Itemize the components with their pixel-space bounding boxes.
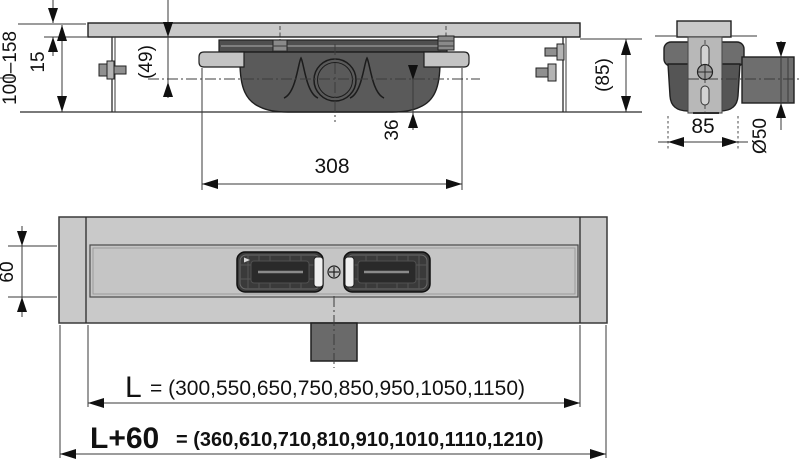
lift-slot-left-unit [314,257,323,287]
technical-drawing: 100–158 15 (49) 36 (8 [0,0,800,460]
grate-insert-right [344,252,430,292]
grate-insert-left [237,252,323,292]
outlet-pipe [742,57,794,103]
top-plate [88,23,580,37]
end-flange [677,21,731,37]
dim-length-L-values: = (300,550,650,750,850,950,1050,1150) [150,377,525,400]
end-view: Ø50 85 [655,21,799,154]
dim-plate-thickness-label: 15 [28,51,49,72]
plan-view: 60 L = (300,550,650,750,850,950,1050,115… [0,217,607,459]
dim-channel-width: 60 [0,226,57,317]
center-screw [328,266,340,278]
dim-body-length-label: 308 [314,155,349,178]
dim-height-range-label: 100–158 [0,31,21,105]
dim-total-length-values: = (360,610,710,810,910,1010,1110,1210) [176,429,544,451]
dim-axis-to-bottom-label: 36 [382,119,403,140]
dim-total-length: L+60 = (360,610,710,810,910,1010,1110,12… [60,422,606,459]
left-wing [199,52,244,67]
dim-underside-to-axis-label: (49) [136,45,157,79]
left-wall-bolt [99,61,126,79]
dim-body-width-label: 85 [691,115,714,138]
column-slot-bottom [701,86,709,105]
dim-channel-width-label: 60 [0,261,18,282]
right-wall-bolts [536,44,564,81]
right-clamp [438,36,454,50]
column-screw [698,65,713,80]
lift-slot-right-unit [345,257,354,287]
trap-body [240,52,440,112]
dim-underside-to-axis: (49) [136,0,173,98]
dim-plate-thickness: 15 [28,0,58,73]
dim-outlet-diameter-label: Ø50 [750,118,771,154]
right-wing [424,52,469,67]
dim-overall-height-label: (85) [593,58,614,92]
dim-length-L: L = (300,550,650,750,850,950,1050,1150) [88,371,580,408]
side-view: 100–158 15 (49) 36 (8 [0,0,642,190]
dim-length-L-letter: L [125,371,142,404]
dim-body-width: 85 [658,115,748,150]
dim-overall-height: (85) [593,39,631,112]
column-slot-top [701,45,709,67]
drain-drawing-canvas: 100–158 15 (49) 36 (8 [0,0,800,460]
dim-total-length-letter: L+60 [90,422,159,455]
